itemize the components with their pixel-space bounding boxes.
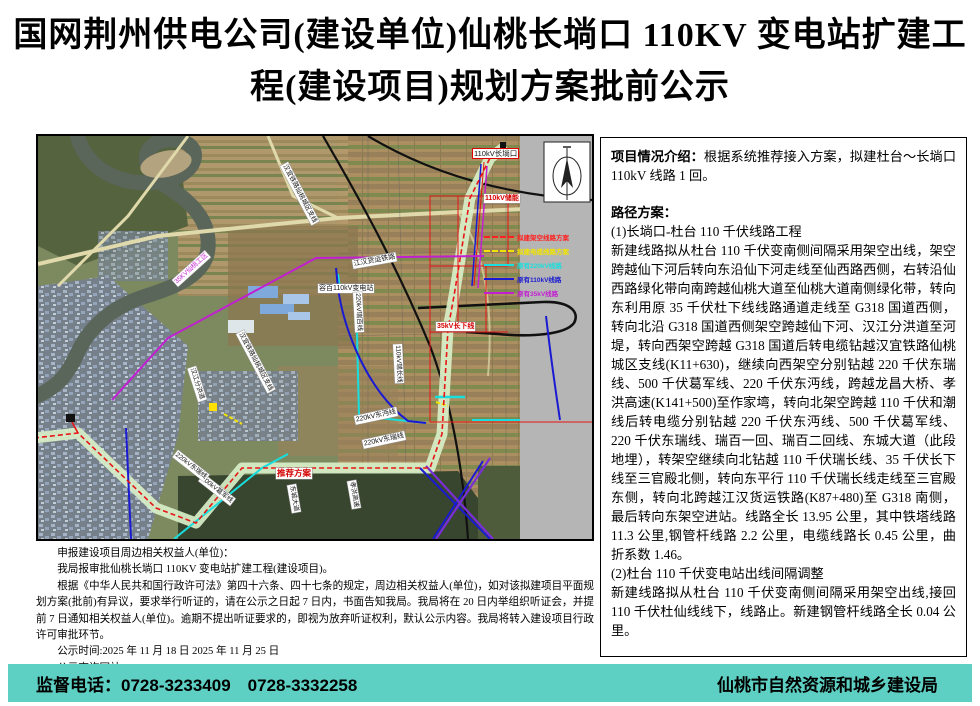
map-label: 110kV瑞长线 — [393, 344, 404, 384]
map-label: 110kV储能 — [484, 194, 520, 203]
footer-bar: 监督电话：0728-3233409 0728-3332258 仙桃市自然资源和城… — [8, 664, 972, 702]
map-label: 孝洪高速 — [347, 480, 361, 509]
map-label: 东城大道 — [287, 484, 301, 513]
notice-time: 公示时间:2025 年 11 月 18 日 2025 年 11 月 25 日 — [36, 644, 594, 660]
project-info-panel: 项目情况介绍：根据系统推荐接入方案，拟建杜台～长埫口 110kV 线路 1 回。… — [600, 137, 967, 657]
route-plan-heading: 路径方案： — [611, 205, 677, 220]
agency-name: 仙桃市自然资源和城乡建设局 — [717, 671, 972, 696]
map-label: 35kV长下线 — [436, 322, 475, 331]
legend-label: 拟建架空线路方案 — [517, 232, 569, 242]
intro-paragraph: 项目情况介绍：根据系统推荐接入方案，拟建杜台～长埫口 110kV 线路 1 回。 — [611, 147, 956, 185]
legend-label: 拟建电缆线路方案 — [517, 246, 569, 256]
legend-row: 原有220kV线路 — [484, 258, 569, 272]
map-label: 220kV瑞百线 — [353, 292, 364, 332]
page-title: 国网荆州供电公司(建设单位)仙桃长埫口 110KV 变电站扩建工 程(建设项目)… — [0, 10, 980, 114]
map-label: 推荐方案 — [276, 468, 312, 479]
legend-line-sample — [484, 292, 514, 294]
map-label: 容百110kV变电站 — [318, 284, 374, 293]
legend-line-sample — [484, 236, 514, 238]
legend-row: 拟建架空线路方案 — [484, 230, 569, 244]
title-line-2: 程(建设项目)规划方案批前公示 — [0, 62, 980, 114]
map-label: 汉宜铁路仙桃城区支线 — [236, 330, 275, 393]
title-line-1: 国网荆州供电公司(建设单位)仙桃长埫口 110KV 变电站扩建工 — [0, 10, 980, 62]
map-labels-layer: 110kV长埫口110kV储能江汉货运铁路容百110kV变电站35kV长下线22… — [38, 136, 592, 539]
notice-paragraph: 根据《中华人民共和国行政许可法》第四十六条、四十七条的规定，周边相关权益人(单位… — [36, 579, 594, 645]
map-label: 220kV东瑞线 — [362, 431, 406, 449]
legend-row: 原有110kV线路 — [484, 272, 569, 286]
notice-line-2: 我局报审批仙桃长埫口 110KV 变电站扩建工程(建设项目)。 — [36, 562, 594, 578]
route-item1-title: (1)长埫口-杜台 110 千伏线路工程 — [611, 222, 956, 241]
legend-label: 原有220kV线路 — [517, 260, 562, 270]
route-map-panel: 110kV长埫口110kV储能江汉货运铁路容百110kV变电站35kV长下线22… — [36, 134, 594, 541]
notice-block: 申报建设项目周边相关权益人(单位)： 我局报审批仙桃长埫口 110KV 变电站扩… — [36, 546, 594, 677]
map-label: 江汉货运铁路 — [352, 252, 397, 269]
legend-line-sample — [484, 278, 514, 280]
route-item2-title: (2)杜台 110 千伏变电站出线间隔调整 — [611, 564, 956, 583]
intro-label: 项目情况介绍： — [611, 149, 704, 164]
public-notice-page: 国网荆州供电公司(建设单位)仙桃长埫口 110KV 变电站扩建工 程(建设项目)… — [0, 0, 980, 706]
map-label: 35KV仙桃工区 — [172, 251, 211, 287]
map-label: 220kV东沔线 — [354, 407, 398, 425]
legend-row: 原有35kV线路 — [484, 286, 569, 300]
legend-row: 拟建电缆线路方案 — [484, 244, 569, 258]
legend-label: 原有35kV线路 — [517, 288, 558, 298]
map-label: 220kV东瑞线 — [172, 450, 209, 482]
map-label: 汉江分洪道 — [187, 366, 206, 402]
supervision-phone: 监督电话：0728-3233409 0728-3332258 — [8, 671, 357, 696]
route-item2-body: 新建线路拟从杜台 110 千伏变南侧间隔采用架空出线,接回 110 千伏杜仙线线… — [611, 583, 956, 640]
legend-line-sample — [484, 264, 514, 266]
legend-label: 原有110kV线路 — [517, 274, 561, 284]
map-legend: 拟建架空线路方案拟建电缆线路方案原有220kV线路原有110kV线路原有35kV… — [484, 230, 569, 300]
map-label: 110kV长埫口 — [472, 148, 519, 159]
notice-line-1: 申报建设项目周边相关权益人(单位)： — [36, 546, 594, 562]
route-item1-body: 新建线路拟从杜台 110 千伏变南侧间隔采用架空出线，架空跨越仙下河后转向东沿仙… — [611, 241, 956, 564]
map-label: 汉宜铁路仙桃城区支线 — [280, 162, 319, 225]
legend-line-sample — [484, 250, 514, 252]
